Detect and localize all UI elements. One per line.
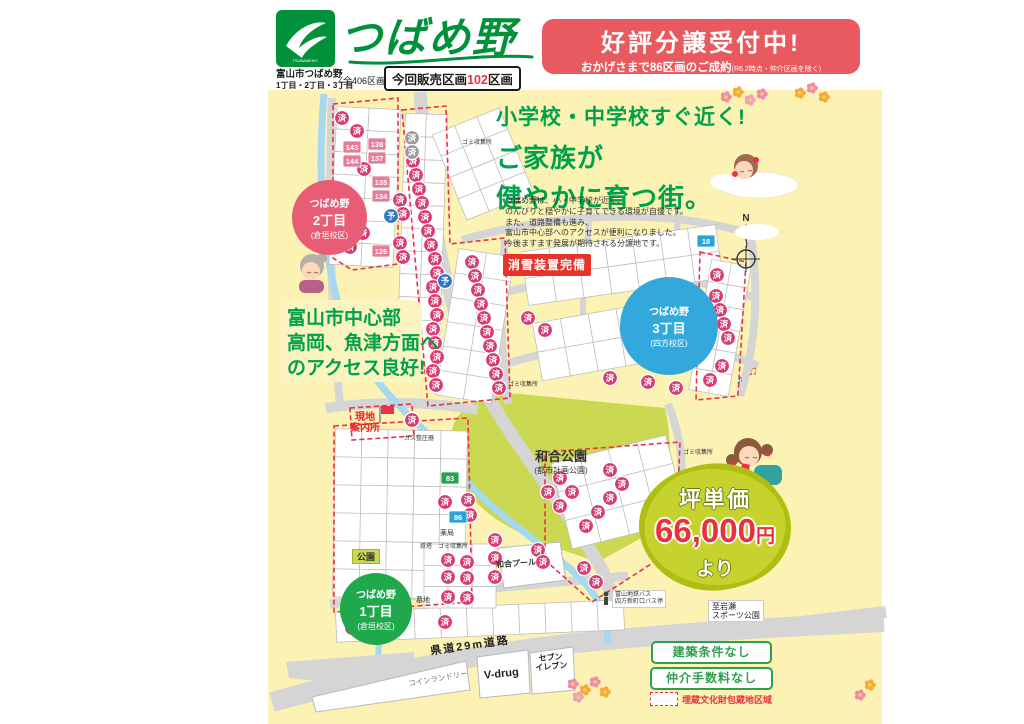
sold-badge: 済	[465, 255, 480, 270]
seven-eleven-label: セブン イレブン	[534, 652, 567, 673]
sold-badge: 済	[536, 555, 551, 570]
numbered-lot: 86	[449, 511, 467, 523]
svg-text:済: 済	[396, 238, 405, 248]
district-name: つばめ野	[620, 303, 718, 318]
svg-text:済: 済	[463, 573, 472, 583]
brand-logo-mark: TSUBAMENO	[276, 10, 335, 67]
sold-badge: 済	[393, 236, 408, 251]
svg-text:済: 済	[580, 563, 589, 573]
legend-no-brokerage-fee: 仲介手数料なし	[650, 667, 773, 690]
district-chome: 1丁目	[340, 601, 412, 620]
sold-badge: 済	[393, 193, 408, 208]
svg-text:予: 予	[387, 211, 396, 221]
svg-text:済: 済	[441, 617, 450, 627]
sold-badge: 済	[474, 297, 489, 312]
sold-badge: 済	[538, 323, 553, 338]
sold-badge: 済	[441, 553, 456, 568]
svg-text:済: 済	[539, 557, 548, 567]
sold-badge: 済	[553, 499, 568, 514]
svg-text:済: 済	[712, 291, 721, 301]
sold-badge: 済	[460, 591, 475, 606]
svg-text:済: 済	[421, 212, 430, 222]
sold-badge: 済	[460, 571, 475, 586]
svg-text:済: 済	[424, 226, 433, 236]
svg-text:済: 済	[534, 545, 543, 555]
svg-text:済: 済	[556, 501, 565, 511]
sold-badge: 済	[405, 413, 420, 428]
svg-text:済: 済	[672, 383, 681, 393]
district-circle-3chome: つばめ野 3丁目 (四方校区)	[620, 277, 718, 375]
bus-stop-icon	[604, 592, 609, 605]
svg-text:済: 済	[524, 313, 533, 323]
flyer-page: 済済済済済済済済済済済済済済済済済済済済済済済済済済済済済済済済済済済済済済済済…	[0, 0, 1024, 724]
sold-badge: 済	[717, 317, 732, 332]
sold-badge: 済	[424, 238, 439, 253]
svg-text:86: 86	[454, 513, 462, 522]
legend-buried-cultural-area: 埋蔵文化財包蔵地区域	[650, 692, 772, 706]
sold-badge: 済	[396, 250, 411, 265]
svg-text:83: 83	[446, 474, 454, 483]
svg-text:済: 済	[396, 195, 405, 205]
numbered-lot: 135	[372, 176, 390, 188]
site-office-label: 現地 案内所	[350, 412, 380, 434]
sold-badge: 済	[492, 381, 507, 396]
svg-text:済: 済	[491, 572, 500, 582]
sold-badge: 済	[715, 359, 730, 374]
description-line: つばめ野は、小・中学校が近く、	[505, 196, 688, 207]
banner-title: 好評分譲受付中!	[542, 23, 860, 58]
svg-text:済: 済	[429, 282, 438, 292]
sold-badge: 済	[471, 283, 486, 298]
sold-badge: 済	[615, 477, 630, 492]
sold-badge: 済	[488, 533, 503, 548]
district-school: (四方校区)	[620, 338, 718, 349]
access-line-2: 高岡、魚津方面へ	[287, 331, 439, 356]
sold-badge: 済	[438, 615, 453, 630]
bus-line-name: 富山地鉄バス	[615, 592, 663, 599]
office-line-2: 案内所	[350, 423, 380, 434]
sold-badge: 済	[541, 485, 556, 500]
svg-text:済: 済	[464, 495, 473, 505]
svg-text:済: 済	[486, 341, 495, 351]
svg-text:137: 137	[371, 154, 384, 163]
svg-text:済: 済	[713, 270, 722, 280]
sold-badge: 済	[603, 491, 618, 506]
svg-text:138: 138	[371, 140, 384, 149]
svg-text:済: 済	[474, 285, 483, 295]
garbage-station-label: ゴミ収集所	[683, 450, 713, 457]
sold-gray-badge: 済	[405, 145, 420, 160]
sold-badge: 済	[721, 331, 736, 346]
svg-text:済: 済	[463, 557, 472, 567]
svg-text:済: 済	[592, 577, 601, 587]
park-subtitle: (都市計画公園)	[506, 465, 616, 476]
svg-text:済: 済	[399, 209, 408, 219]
banner-subtitle: おかげさまで86区画のご成約	[581, 62, 732, 74]
pharmacy-label: 薬局	[440, 531, 454, 538]
svg-text:済: 済	[644, 377, 653, 387]
sold-badge: 済	[565, 485, 580, 500]
district-chome: 2丁目	[292, 210, 367, 229]
sold-badge: 済	[415, 196, 430, 211]
price-circle: 坪単価 66,000円 より	[636, 460, 794, 594]
sold-badge: 済	[703, 373, 718, 388]
sold-badge: 済	[412, 182, 427, 197]
svg-text:済: 済	[491, 535, 500, 545]
sold-badge: 済	[461, 493, 476, 508]
sold-badge: 済	[641, 375, 656, 390]
headline-line-1: 小学校・中学校すぐ近く!	[496, 101, 746, 131]
svg-text:済: 済	[471, 271, 480, 281]
sold-badge: 済	[460, 555, 475, 570]
svg-text:済: 済	[418, 198, 427, 208]
sold-badge: 済	[418, 210, 433, 225]
numbered-lot: 18	[697, 235, 715, 247]
svg-text:済: 済	[468, 257, 477, 267]
sold-badge: 済	[441, 590, 456, 605]
svg-text:134: 134	[375, 192, 388, 201]
district-circle-1chome: つばめ野 1丁目 (倉垣校区)	[340, 573, 412, 645]
svg-text:済: 済	[568, 487, 577, 497]
svg-text:済: 済	[338, 113, 347, 123]
sold-badge: 済	[480, 325, 495, 340]
dashed-boundary-swatch	[650, 692, 678, 706]
svg-text:済: 済	[606, 373, 615, 383]
sold-badge: 済	[603, 371, 618, 386]
numbered-lot: 137	[368, 152, 386, 164]
description-line: 今後ますます発展が期待される分譲地です。	[505, 239, 688, 250]
svg-text:済: 済	[463, 593, 472, 603]
svg-text:144: 144	[346, 157, 359, 166]
sale-prefix: 今回販売区画	[392, 73, 467, 87]
sold-badge: 済	[521, 311, 536, 326]
small-park-label: 公園	[352, 549, 380, 564]
sold-badge: 済	[468, 269, 483, 284]
sold-badge: 済	[488, 570, 503, 585]
sold-badge: 済	[421, 224, 436, 239]
svg-text:済: 済	[594, 507, 603, 517]
sold-badge: 済	[669, 381, 684, 396]
svg-text:済: 済	[606, 493, 615, 503]
small-cloud	[735, 224, 779, 240]
numbered-lot: 144	[343, 155, 361, 167]
gas-regulator-label: ガス整圧器	[404, 436, 434, 443]
numbered-lot: 126	[372, 245, 390, 257]
district-name: つばめ野	[292, 195, 367, 210]
reserved-badge: 予	[438, 274, 453, 289]
snow-melt-badge: 消雪装置完備	[503, 254, 591, 276]
svg-text:18: 18	[702, 237, 710, 246]
svg-text:済: 済	[408, 133, 417, 143]
sale-count: 102	[467, 73, 488, 87]
description-line: また、道路整備も進み、	[505, 218, 688, 229]
svg-text:済: 済	[444, 555, 453, 565]
sold-badge: 済	[477, 311, 492, 326]
sold-badge: 済	[335, 111, 350, 126]
sales-banner: 好評分譲受付中! おかげさまで86区画のご成約(R6.2時点・仲介区画を除く)	[542, 19, 860, 74]
district-chome: 3丁目	[620, 318, 718, 337]
svg-text:済: 済	[408, 147, 417, 157]
description-paragraph: つばめ野は、小・中学校が近く、 のんびりと穏やかに子育てできる環境が自慢です。 …	[505, 196, 688, 250]
svg-text:済: 済	[582, 521, 591, 531]
district-school: (倉垣校区)	[292, 230, 367, 241]
sold-badge: 済	[438, 495, 453, 510]
price-suffix: より	[636, 554, 794, 581]
svg-text:済: 済	[415, 184, 424, 194]
legend-no-building-conditions: 建築条件なし	[651, 641, 772, 664]
svg-text:済: 済	[483, 327, 492, 337]
svg-text:143: 143	[346, 143, 359, 152]
district-school: (倉垣校区)	[340, 621, 412, 632]
svg-text:済: 済	[353, 126, 362, 136]
sale-suffix: 区画	[488, 73, 513, 87]
sold-gray-badge: 済	[405, 131, 420, 146]
to-sports-park-label: 至岩瀬 スポーツ公園	[708, 600, 764, 622]
svg-text:済: 済	[444, 572, 453, 582]
sold-badge: 済	[589, 575, 604, 590]
sold-badge: 済	[591, 505, 606, 520]
price-amount: 66,000	[655, 512, 756, 549]
music-note-icon: ♪	[736, 371, 744, 388]
to-sports-line-2: スポーツ公園	[712, 611, 760, 620]
svg-text:済: 済	[718, 361, 727, 371]
svg-text:済: 済	[399, 252, 408, 262]
access-note: 富山市中心部 高岡、魚津方面へ のアクセス良好!	[287, 306, 439, 381]
bus-stop-name: 四方新町口バス停	[615, 599, 663, 606]
price-unit: 円	[756, 526, 775, 547]
music-note-icon: ♫	[748, 363, 758, 378]
sold-badge: 済	[441, 570, 456, 585]
svg-text:126: 126	[375, 247, 388, 256]
svg-text:済: 済	[489, 355, 498, 365]
sold-badge: 済	[428, 252, 443, 267]
sold-badge: 済	[409, 168, 424, 183]
svg-text:済: 済	[444, 592, 453, 602]
svg-text:済: 済	[427, 240, 436, 250]
sold-badge: 済	[489, 367, 504, 382]
description-line: 富山市中心部へのアクセスが便利になりました。	[505, 228, 688, 239]
svg-text:済: 済	[477, 299, 486, 309]
district-name: つばめ野	[340, 586, 412, 601]
numbered-lot: 138	[368, 138, 386, 150]
to-sports-line-1: 至岩瀬	[712, 602, 760, 611]
svg-text:済: 済	[441, 497, 450, 507]
access-line-3: のアクセス良好!	[287, 356, 439, 381]
svg-text:済: 済	[480, 313, 489, 323]
access-line-1: 富山市中心部	[287, 306, 439, 331]
sold-badge: 済	[483, 339, 498, 354]
district-circle-2chome: つばめ野 2丁目 (倉垣校区)	[292, 180, 367, 255]
numbered-lot: 83	[441, 472, 459, 484]
garbage-station-label: ゴミ収集所	[438, 544, 468, 551]
banner-note: (R6.2時点・仲介区画を除く)	[732, 66, 821, 73]
current-sale-box: 今回販売区画102区画	[384, 66, 521, 91]
bus-stop-label: 富山地鉄バス 四方新町口バス停	[612, 590, 666, 608]
svg-text:済: 済	[432, 380, 441, 390]
numbered-lot: 143	[343, 141, 361, 153]
svg-text:済: 済	[724, 333, 733, 343]
wago-park-label: 和合公園 (都市計画公園)	[506, 446, 616, 476]
sold-badge: 済	[710, 268, 725, 283]
sold-badge: 済	[486, 353, 501, 368]
office-line-1: 現地	[350, 412, 380, 423]
numbered-lot: 134	[372, 190, 390, 202]
svg-text:済: 済	[431, 254, 440, 264]
sold-badge: 済	[350, 124, 365, 139]
garbage-station-label: ゴミ収集所	[462, 140, 492, 147]
description-line: のんびりと穏やかに子育てできる環境が自慢です。	[505, 207, 688, 218]
svg-text:済: 済	[706, 375, 715, 385]
svg-text:済: 済	[431, 296, 440, 306]
graveyard-label: 墓地	[416, 598, 430, 605]
svg-text:済: 済	[541, 325, 550, 335]
logo-mark-text: TSUBAMENO	[292, 58, 317, 63]
svg-text:済: 済	[412, 170, 421, 180]
park-name: 和合公園	[506, 446, 616, 465]
sold-badge: 済	[579, 519, 594, 534]
tower-label: 鉄塔	[420, 544, 432, 551]
headline-line-2: ご家族が	[496, 138, 746, 175]
svg-text:済: 済	[544, 487, 553, 497]
svg-text:済: 済	[408, 415, 417, 425]
price-label: 坪単価	[636, 482, 794, 514]
garbage-station-label: ゴミ収集所	[508, 382, 538, 389]
svg-text:済: 済	[492, 369, 501, 379]
buried-area-text: 埋蔵文化財包蔵地区域	[682, 693, 772, 706]
svg-text:済: 済	[720, 319, 729, 329]
sold-badge: 済	[577, 561, 592, 576]
reserved-badge: 予	[384, 209, 399, 224]
svg-text:135: 135	[375, 178, 388, 187]
svg-text:済: 済	[618, 479, 627, 489]
svg-text:済: 済	[495, 383, 504, 393]
svg-text:予: 予	[441, 276, 450, 286]
